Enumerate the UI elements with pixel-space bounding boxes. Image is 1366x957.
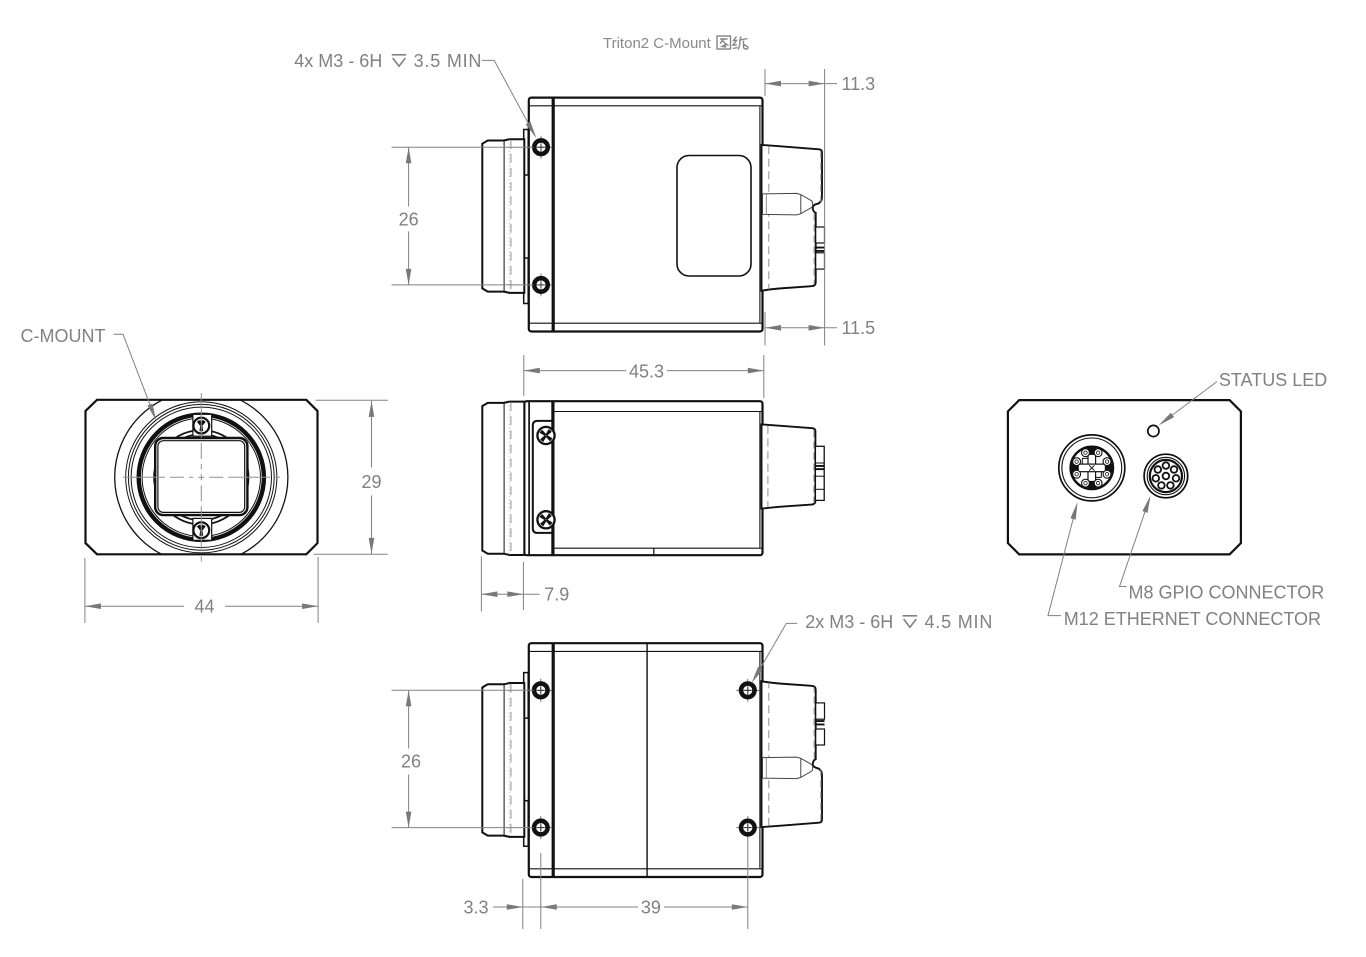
svg-text:45.3: 45.3: [629, 362, 664, 382]
svg-text:26: 26: [401, 752, 421, 772]
svg-text:3.5 MIN: 3.5 MIN: [414, 51, 483, 71]
svg-text:2x M3 - 6H: 2x M3 - 6H: [805, 612, 893, 632]
svg-text:3.3: 3.3: [463, 898, 488, 918]
svg-text:26: 26: [399, 209, 419, 229]
svg-text:M12 ETHERNET CONNECTOR: M12 ETHERNET CONNECTOR: [1064, 609, 1321, 629]
svg-text:11.3: 11.3: [842, 74, 876, 94]
svg-text:STATUS LED: STATUS LED: [1219, 370, 1327, 390]
svg-text:Triton2 C-Mount: Triton2 C-Mount: [603, 35, 712, 52]
svg-text:39: 39: [641, 898, 661, 918]
svg-text:11.5: 11.5: [842, 318, 876, 338]
svg-text:4.5 MIN: 4.5 MIN: [925, 612, 994, 632]
svg-text:29: 29: [361, 472, 381, 492]
svg-text:C-MOUNT: C-MOUNT: [21, 326, 106, 346]
svg-text:44: 44: [194, 597, 214, 617]
svg-text:M8 GPIO CONNECTOR: M8 GPIO CONNECTOR: [1129, 582, 1325, 602]
svg-text:7.9: 7.9: [544, 585, 569, 605]
svg-text:4x M3 - 6H: 4x M3 - 6H: [294, 51, 382, 71]
